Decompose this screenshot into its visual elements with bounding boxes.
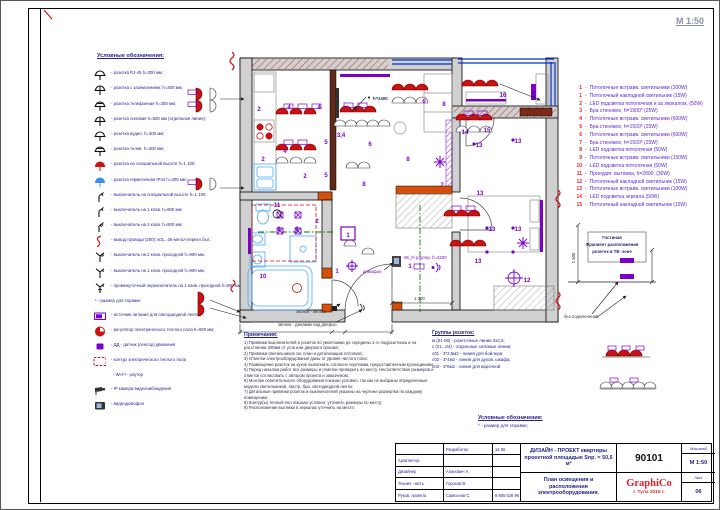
title-block-scale-sheet: Масштаб М 1:50 Лист 06	[682, 444, 715, 501]
legend-item: - выключатель на 1 клав. проходной h=900…	[93, 265, 247, 278]
switch-1key-icon	[93, 204, 106, 217]
brand-city-year: г. Тула 2019 г.	[633, 490, 664, 495]
legend2-block: Условные обозначения: * - размер для спр…	[478, 415, 608, 428]
legend-item: - ДД - датчик (сенсор) движения	[93, 339, 247, 352]
notes-title: Примечания:	[244, 332, 436, 338]
legend-item: * - размер для справки	[93, 295, 247, 307]
switch-intermediate-icon	[93, 280, 106, 293]
legend-item: - IP камера видеонаблюдения	[93, 383, 247, 396]
legend-item: - Wi-Fi - роутер	[93, 369, 247, 381]
fixture-item: 6-Потолочные встраив. светильники (600W)	[574, 132, 716, 140]
legend-item: - розетка телев. h=300 мм;	[93, 143, 247, 156]
socket-groups-title: Группы розеток:	[432, 330, 554, 336]
socket-icon	[93, 67, 106, 80]
fixture-item: 3-Бра стеновое, h=1500* (25W)	[574, 108, 716, 116]
wire-exit-icon	[93, 234, 106, 247]
switch-2key-pass-icon	[93, 249, 106, 262]
fixture-item: 4-Потолочные встраив. светильники (600W)	[574, 116, 716, 124]
legend-item: - розетка телефонная h=300 мм;	[93, 98, 247, 111]
scale-label: Масштаб	[682, 444, 715, 454]
fixture-item: 7-Бра стеновое, h=1500* (25W)	[574, 140, 716, 148]
socket-audio-icon	[93, 128, 106, 141]
ip-camera-icon	[93, 383, 106, 396]
brand-cell: GraphiCo г. Тула 2019 г.	[617, 473, 681, 501]
legend-item: - розетка с заземлением; h=300 мм;	[93, 82, 247, 95]
socket-grounded-icon	[93, 82, 106, 95]
fixture-item: 1-Потолочный накладной светильник (15W)	[574, 93, 716, 101]
legend-item: - контур электрического теплого пола	[93, 354, 247, 367]
switch-special-height-icon	[93, 189, 106, 202]
fixture-item: 5-Бра стеновое, h=1500* (25W)	[574, 124, 716, 132]
scale-note: М 1:50	[640, 16, 704, 26]
fixture-item: 1-Потолочные встраив. светильники (300W)	[574, 85, 716, 93]
title-block-titles: ДИЗАЙН - ПРОЕКТ квартиры проектной площа…	[521, 444, 617, 501]
legend-item: - выключатель на 2 клав. h=900 мм;	[93, 219, 247, 232]
legend2-title: Условные обозначения:	[478, 415, 608, 421]
fixtures-list: 1-Потолочные встраив. светильники (300W)…	[574, 85, 716, 210]
title-block-personnel: Разработал14.06 Архитектор ДизайнерАлано…	[396, 444, 521, 501]
legend-item: - розетка силовая h=600 мм (отдельная ли…	[93, 113, 247, 126]
socket-ip44-icon	[93, 174, 106, 187]
fixture-item: 12-Потолочный накладной светильник (15W)	[574, 179, 716, 187]
fixture-item: 14-LED подсветка зеркала (50W)	[574, 194, 716, 202]
sheet-label: Лист	[682, 473, 715, 483]
fixture-item: 2-LED подсветка потолочная и за зеркалом…	[574, 101, 716, 109]
legend-item: - розетка RJ-45 h=300 мм;	[93, 67, 247, 80]
legend-item: - видеодомофон	[93, 398, 247, 411]
fixture-item: 9-Потолочные встраив. светильники (150W)	[574, 155, 716, 163]
fixture-item: 15-Потолочный накладной светильник (15W)	[574, 202, 716, 210]
legend-item: - розетка аудио, h=300 мм;	[93, 128, 247, 141]
socket-phone-icon	[93, 98, 106, 111]
legend-item: - промежуточный переключатель на 1 клав.…	[93, 280, 247, 293]
project-title: ДИЗАЙН - ПРОЕКТ квартиры проектной площа…	[521, 444, 616, 473]
notes-block: Примечания: 1) Привязки выключателей и р…	[244, 332, 436, 411]
socket-groups-block: Группы розеток: м (01-08) - розеточные л…	[432, 330, 554, 370]
sheet-title: План освещения и расположения электрообо…	[521, 473, 616, 501]
legend-item: - розетка на специальной высоте h=1 100;	[93, 158, 247, 171]
motion-sensor-icon	[93, 339, 106, 352]
sheet-number: 06	[682, 483, 715, 501]
switch-1key-pass-icon	[93, 265, 106, 278]
legend-item: - регулятор электрического теплого пола …	[93, 324, 247, 337]
fixture-item: 10-LED подсветка потолочная (50W)	[574, 163, 716, 171]
fixture-item: 13-Потолочные встраив. светильники (100W…	[574, 186, 716, 194]
socket-special-height-icon	[93, 158, 106, 171]
floor-heating-regulator-icon	[93, 324, 106, 337]
drawing-sheet: { "sheet": { "scale_note": "М 1:50" }, "…	[0, 0, 720, 510]
title-block: Разработал14.06 Архитектор ДизайнерАлано…	[395, 443, 712, 502]
switch-2key-icon	[93, 219, 106, 232]
scale-value: М 1:50	[682, 454, 715, 473]
project-code: 90101	[617, 444, 681, 473]
legend: Условные обозначения: - розетка RJ-45 h=…	[93, 53, 247, 411]
binding-margin-line	[40, 8, 41, 502]
floor-heating-contour-icon	[93, 354, 106, 367]
legend-item: - выключатель на специальной высоте h=1 …	[93, 189, 247, 202]
title-block-code: 90101 GraphiCo г. Тула 2019 г.	[617, 444, 682, 501]
intercom-icon	[93, 398, 106, 411]
led-psu-icon	[93, 309, 106, 322]
legend-item: - источник питания для светодиодной лент…	[93, 309, 247, 322]
legend-item: - выключатель на 2 клав. проходной h=900…	[93, 249, 247, 262]
legend-title: Условные обозначения:	[97, 53, 247, 59]
legend-item: - выключатель на 1 клав. h=900 мм;	[93, 204, 247, 217]
fixture-item: 8-LED подсветка потолочная (50W)	[574, 147, 716, 155]
socket-tv-icon	[93, 143, 106, 156]
legend-item: - розетка герметичная IP44 h=300 мм;	[93, 174, 247, 187]
brand-logo: GraphiCo	[626, 479, 672, 490]
fixture-item: 11-Принудит. вытяжка, h=2800, (30W)	[574, 171, 716, 179]
socket-power-icon	[93, 113, 106, 126]
legend-item: - вывод провода (200); к01...06-метал пе…	[93, 234, 247, 247]
